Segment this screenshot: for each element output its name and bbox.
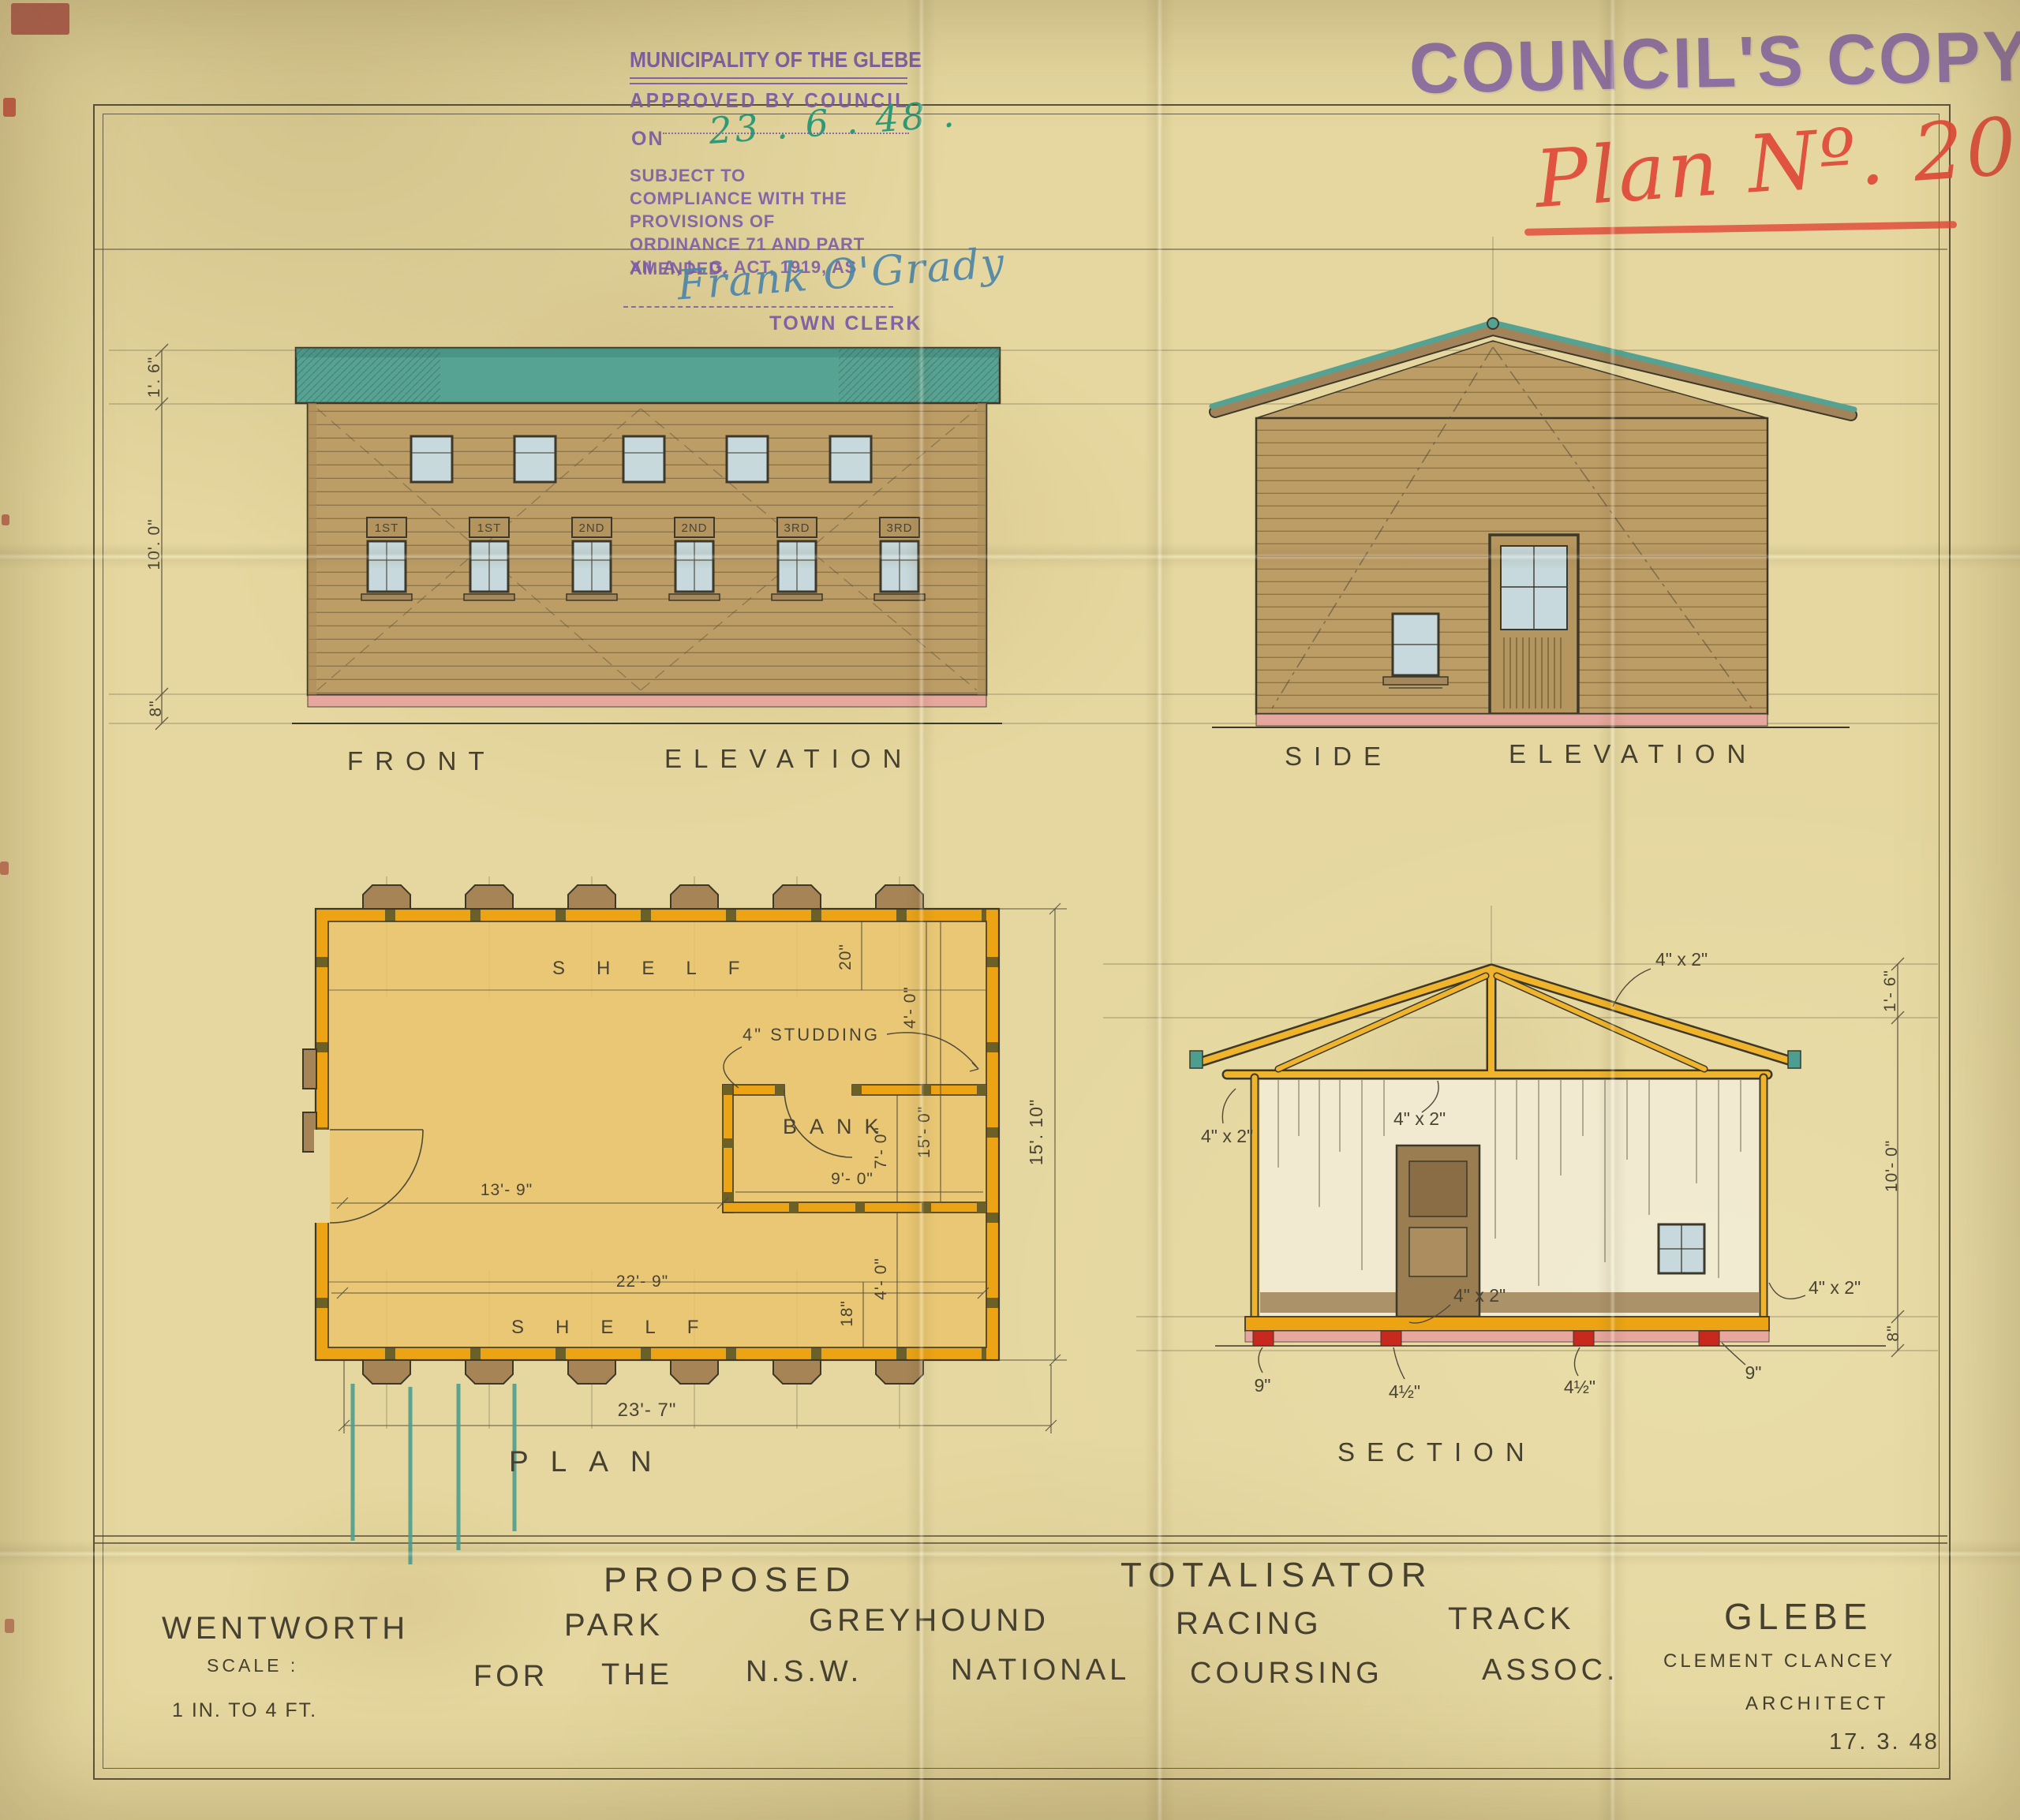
title-the: THE xyxy=(601,1658,673,1692)
title-proposed: PROPOSED xyxy=(604,1560,857,1600)
councils-copy-stamp: COUNCIL'S COPY. xyxy=(1408,15,2020,110)
title-for: FOR xyxy=(473,1660,548,1694)
title-glebe: GLEBE xyxy=(1724,1595,1872,1638)
front-elevation-caption-word2: ELEVATION xyxy=(664,744,913,774)
architect-name: CLEMENT CLANCEY xyxy=(1663,1650,1895,1672)
architect-title: ARCHITECT xyxy=(1745,1693,1889,1715)
drawing-date: 17. 3. 48 xyxy=(1829,1729,1940,1755)
section-dim-roof-height: 1'- 6" xyxy=(1881,940,1900,1042)
title-wentworth: WENTWORTH xyxy=(162,1611,409,1646)
edge-mark xyxy=(0,861,9,875)
title-track: TRACK xyxy=(1448,1601,1575,1637)
edge-mark xyxy=(2,514,9,525)
plan-caption: PLAN xyxy=(509,1445,674,1478)
drawing-sheet: 1ST 1ST 2ND 2ND 3RD 3RD xyxy=(0,0,2020,1820)
front-dim-roof-height: 1'. 6" xyxy=(145,326,164,428)
edge-mark xyxy=(5,1619,14,1633)
municipality-stamp-authority: MUNICIPALITY OF THE GLEBE xyxy=(630,47,922,73)
front-dim-base-height: 8" xyxy=(147,657,166,760)
title-national: NATIONAL xyxy=(951,1654,1130,1687)
stamp-rule xyxy=(630,77,907,84)
sheet-border-inner xyxy=(103,114,1940,1769)
title-greyhound: GREYHOUND xyxy=(809,1603,1049,1639)
side-elevation-caption-word1: SIDE xyxy=(1285,742,1393,772)
title-park: PARK xyxy=(564,1608,664,1643)
title-assoc: ASSOC. xyxy=(1482,1654,1619,1687)
section-dim-base-height: 8" xyxy=(1884,1282,1903,1385)
edge-mark xyxy=(3,98,16,117)
town-clerk-title: TOWN CLERK xyxy=(769,312,922,335)
scale-value: 1 IN. TO 4 FT. xyxy=(172,1699,317,1722)
title-totalisator: TOTALISATOR xyxy=(1120,1556,1433,1595)
stamp-date-line xyxy=(663,133,909,134)
title-coursing: COURSING xyxy=(1190,1657,1383,1691)
title-nsw: N.S.W. xyxy=(746,1655,862,1689)
title-racing: RACING xyxy=(1176,1606,1322,1642)
section-caption: SECTION xyxy=(1337,1437,1536,1467)
side-elevation-caption-word2: ELEVATION xyxy=(1509,739,1757,769)
front-dim-wall-height: 10'. 0" xyxy=(145,493,164,596)
section-dim-wall-height: 10'- 0" xyxy=(1883,1115,1902,1217)
edge-mark xyxy=(11,3,69,35)
signature-line xyxy=(623,306,893,308)
stamp-on-label: ON xyxy=(631,128,664,151)
scale-label: SCALE : xyxy=(207,1655,298,1676)
front-elevation-caption-word1: FRONT xyxy=(347,746,496,776)
